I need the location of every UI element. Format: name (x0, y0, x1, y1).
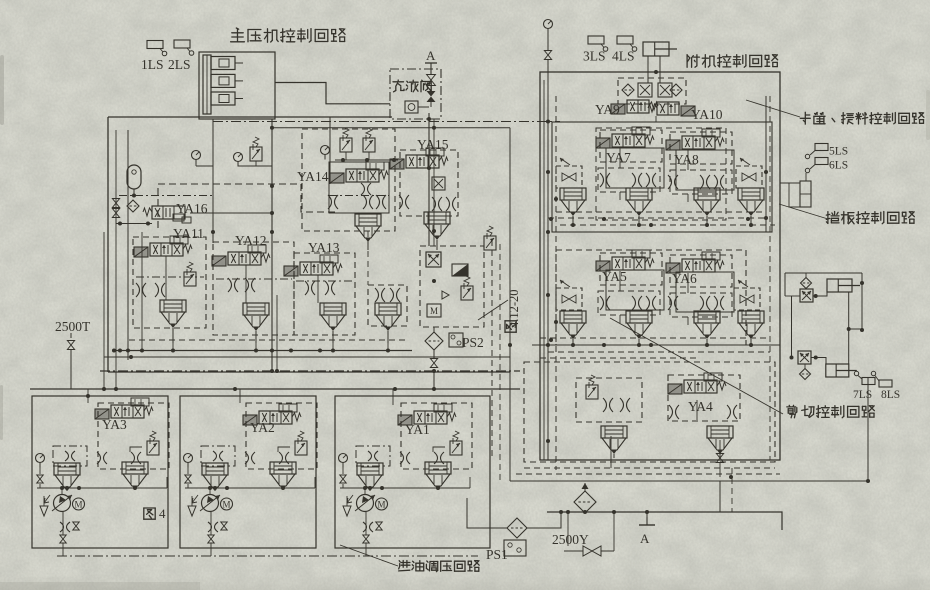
svg-text:YA8: YA8 (674, 152, 699, 167)
svg-text:M: M (378, 500, 386, 510)
svg-text:4: 4 (159, 506, 166, 521)
svg-text:YA2: YA2 (250, 420, 275, 435)
svg-text:PS2: PS2 (462, 335, 484, 350)
svg-text:7LS: 7LS (853, 389, 872, 401)
svg-text:YA4: YA4 (688, 399, 713, 414)
svg-text:5LS: 5LS (829, 146, 848, 158)
svg-text:2LS: 2LS (168, 57, 191, 72)
svg-text:YA3: YA3 (102, 417, 127, 432)
svg-text:2500Y: 2500Y (552, 532, 589, 547)
svg-text:1LS: 1LS (141, 57, 164, 72)
svg-text:M: M (430, 306, 438, 316)
svg-text:YA7: YA7 (606, 150, 631, 165)
svg-text:A: A (640, 531, 650, 546)
svg-text:6LS: 6LS (829, 160, 848, 172)
svg-text:M: M (75, 500, 83, 510)
svg-text:YA12: YA12 (235, 233, 267, 248)
svg-text:4.12-20: 4.12-20 (507, 289, 521, 328)
svg-text:2500T: 2500T (55, 319, 91, 334)
svg-text:8LS: 8LS (881, 389, 900, 401)
svg-text:YA10: YA10 (691, 107, 723, 122)
svg-text:YA1: YA1 (405, 422, 430, 437)
svg-text:4LS: 4LS (612, 49, 635, 64)
svg-text:M: M (223, 500, 231, 510)
svg-text:YA11: YA11 (173, 226, 204, 241)
svg-text:A: A (426, 48, 436, 63)
svg-text:3LS: 3LS (583, 49, 606, 64)
